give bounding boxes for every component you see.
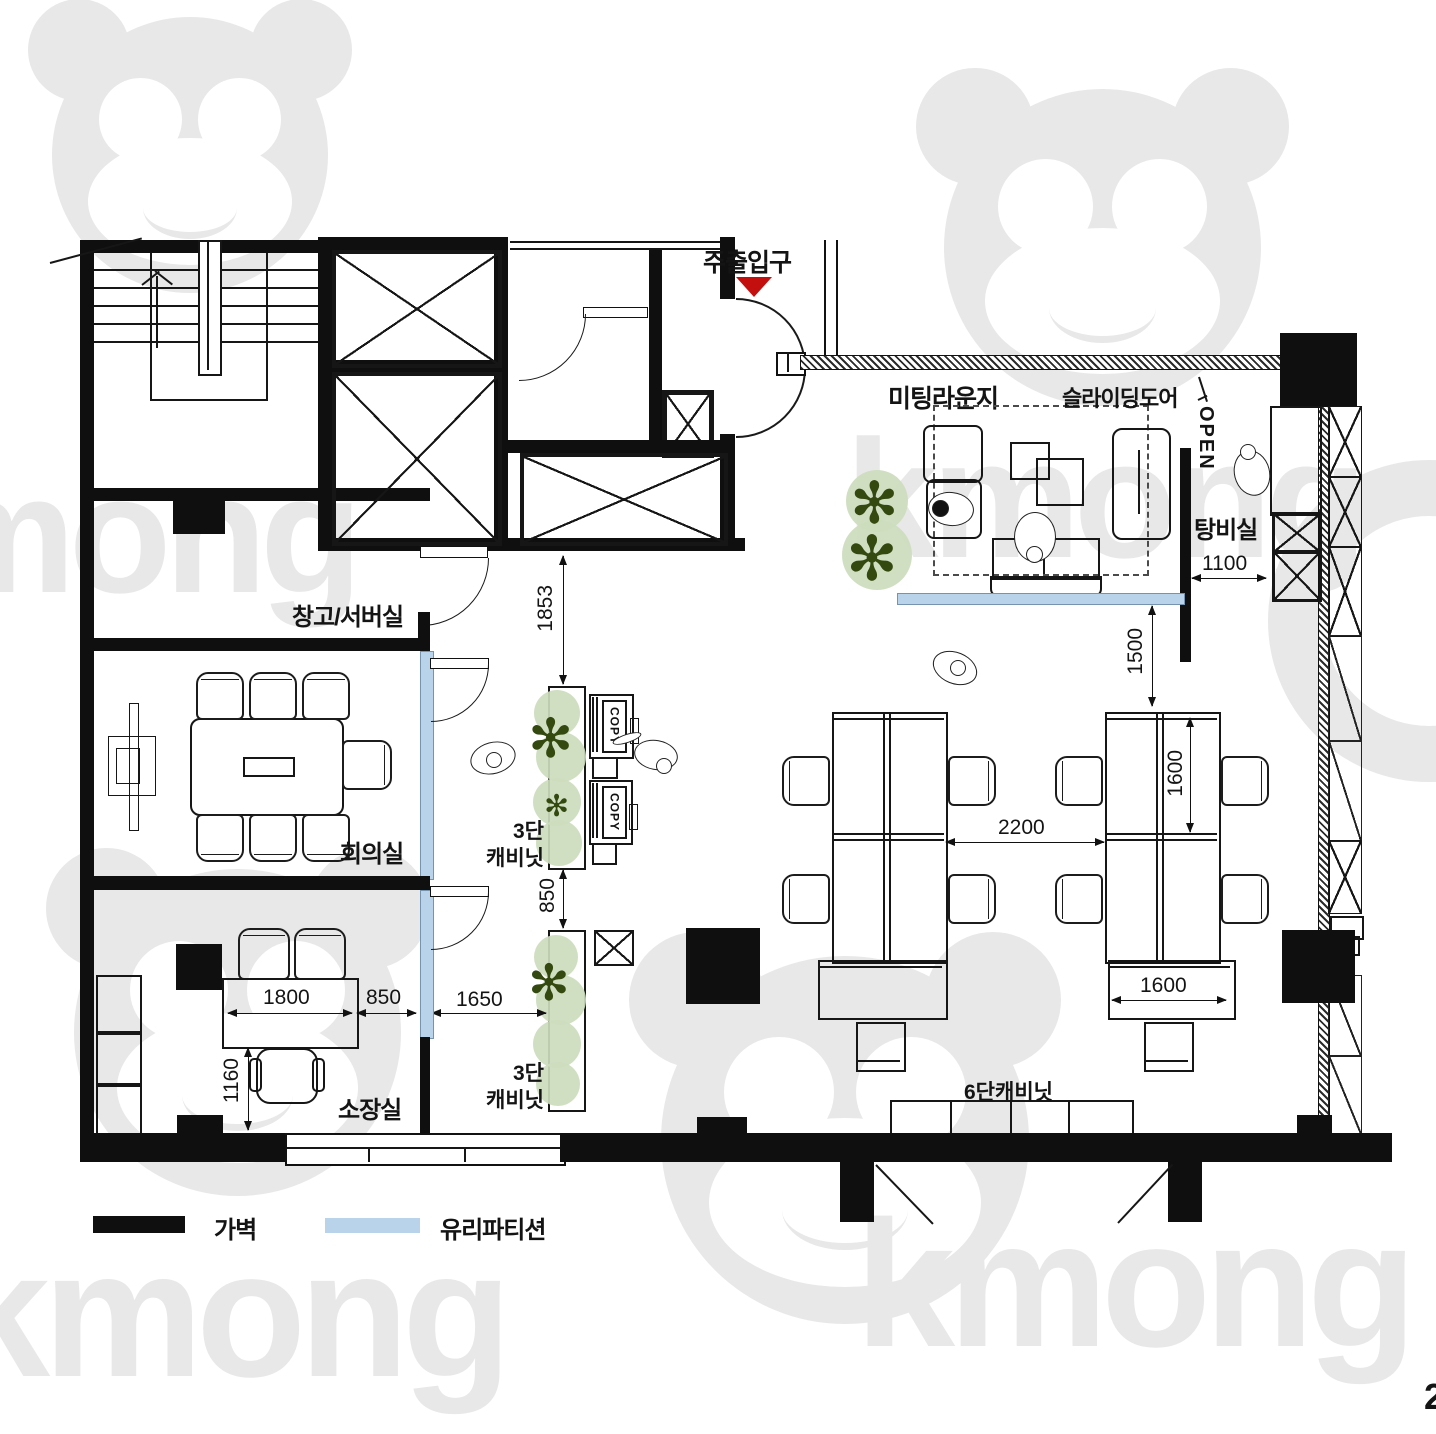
stair-arrow-stem	[156, 276, 158, 348]
office-chair	[782, 874, 830, 924]
cabinet-6tier-divider	[1068, 1100, 1070, 1133]
wall-director-lower	[420, 1037, 430, 1133]
legend-glass-swatch	[325, 1218, 420, 1233]
wall-bottom-stub-right	[1297, 1115, 1332, 1133]
door-jamb-line	[787, 352, 789, 372]
sliding-door-open-label: OPEN	[1194, 406, 1217, 471]
desk-cabinet	[818, 960, 948, 1020]
facade-panel-diag	[1328, 740, 1362, 842]
meeting-room-label: 회의실	[340, 834, 403, 869]
person-head	[950, 660, 966, 676]
copier-label: COPY	[608, 793, 622, 831]
plant-icon: ✻	[846, 528, 898, 590]
cabinet-line	[820, 966, 942, 968]
executive-chair-arm	[312, 1058, 325, 1092]
facade-panel-x	[1328, 546, 1362, 637]
dim-1500-label: 1500	[1124, 628, 1148, 675]
guest-chair	[238, 928, 290, 980]
storage-door-leaf	[420, 546, 488, 558]
dim-1160-label: 1160	[220, 1058, 244, 1103]
cabinet3-label-line1: 3단	[466, 1060, 544, 1087]
dim-1650-label: 1650	[456, 988, 503, 1012]
kmong-text-watermark: kmong	[0, 1225, 505, 1405]
elevator-shaft	[332, 250, 502, 368]
pantry-appliance	[1272, 550, 1322, 602]
cabinet3-label-line1: 3단	[468, 818, 544, 845]
cabinet-6tier-label: 6단캐비닛	[964, 1076, 1053, 1106]
executive-chair	[256, 1048, 318, 1104]
wall-bottom-corner	[1332, 1133, 1392, 1162]
copier-tray	[592, 757, 618, 779]
wall-top-hatched	[800, 355, 1288, 370]
cabinet3-label-line2: 캐비닛	[466, 1087, 544, 1114]
office-chair	[948, 874, 996, 924]
wall-meeting-top	[80, 638, 430, 651]
window-line	[287, 1147, 560, 1149]
meeting-chair	[249, 814, 297, 862]
desk-line	[832, 839, 944, 841]
shaft-c-wall-top	[508, 440, 733, 453]
meeting-chair	[342, 740, 392, 790]
legend-glass-label: 유리파티션	[440, 1210, 545, 1245]
lounge-coffee-table	[1036, 458, 1084, 506]
desk-divider	[883, 712, 885, 960]
side-table	[856, 1022, 906, 1072]
lobby-inner-wall	[649, 250, 662, 448]
office-chair	[1221, 756, 1269, 806]
stair-rail-line	[207, 242, 209, 370]
desk-line	[832, 833, 944, 835]
legend-wall-swatch	[93, 1216, 185, 1233]
cabinet3-label: 3단 캐비닛	[468, 818, 544, 872]
dim-1600h-label: 1600	[1140, 974, 1187, 998]
side-table-line	[858, 1060, 900, 1062]
pantry-counter	[1270, 406, 1322, 516]
extinguisher-symbol	[594, 930, 634, 966]
dim-1600v-label: 1600	[1164, 750, 1188, 797]
meeting-table-tray	[243, 757, 295, 777]
vestibule-door-leaf	[583, 307, 648, 318]
floorplan-canvas: kmong kmong kmong kmong 주출입구	[0, 0, 1436, 1434]
storage-server-label: 창고/서버실	[292, 597, 403, 632]
office-chair	[1221, 874, 1269, 924]
side-table-line	[1146, 1060, 1188, 1062]
dim-1600v	[1190, 718, 1191, 832]
facade-panel-diag	[1328, 635, 1362, 742]
desk-divider	[1156, 712, 1158, 960]
copier-label-box: COPY	[602, 786, 627, 839]
desk-divider	[889, 712, 891, 960]
dim-850-label: 850	[536, 878, 560, 913]
office-chair	[1055, 756, 1103, 806]
plant-icon: ✻	[528, 712, 573, 766]
dim-1800-label: 1800	[263, 986, 310, 1010]
office-chair	[782, 756, 830, 806]
dim-1100-label: 1100	[1202, 552, 1247, 576]
window-band	[285, 1133, 566, 1166]
office-chair	[948, 756, 996, 806]
glass-partition-lounge	[897, 593, 1185, 605]
tv-bracket-inner	[116, 748, 140, 784]
wall-bottom-left	[80, 1133, 290, 1162]
wall-left-outer	[80, 240, 94, 1162]
copier-panel	[592, 783, 600, 838]
bookshelf	[96, 1083, 142, 1137]
meeting-chair	[196, 814, 244, 862]
meeting-chair	[196, 672, 244, 720]
lounge-armchair-line	[1138, 450, 1140, 514]
wall-column-right	[1282, 930, 1355, 1003]
desk-line	[1105, 839, 1217, 841]
legend-wall-label: 가벽	[214, 1210, 256, 1245]
dim-1853-label: 1853	[534, 585, 558, 632]
sliding-door-label: 슬라이딩도어	[1062, 381, 1177, 413]
wall-stub	[173, 501, 225, 534]
window-mullion	[368, 1147, 370, 1162]
pantry-label: 탕비실	[1194, 510, 1257, 545]
dim-1100	[1192, 578, 1266, 579]
facade-panel-x	[1328, 476, 1362, 548]
plant-icon: ✻	[544, 792, 569, 822]
wall-lounge-right	[1180, 448, 1191, 662]
pillar	[840, 1162, 874, 1222]
dim-1853	[563, 556, 564, 684]
elevator-shaft-wide	[520, 453, 728, 546]
pillar	[1168, 1162, 1202, 1222]
page-number: 2	[1424, 1376, 1436, 1418]
wall-core-top	[318, 237, 508, 250]
lounge-armchair-long	[1112, 428, 1171, 540]
pantry-sink	[1272, 512, 1322, 554]
facade-panel-x	[1328, 406, 1362, 478]
person-head	[1240, 444, 1256, 460]
window-mullion	[464, 1147, 466, 1162]
entrance-label: 주출입구	[703, 243, 791, 279]
planter-box	[176, 944, 222, 990]
person-head	[486, 752, 502, 768]
desk-line	[832, 718, 944, 720]
dim-1160	[248, 1048, 249, 1130]
desk-line	[1105, 833, 1217, 835]
copier-label-box: COPY	[602, 700, 627, 753]
copier-tray	[592, 843, 617, 865]
guest-chair	[294, 928, 346, 980]
desk-line	[1105, 718, 1217, 720]
cabinet-line	[1110, 966, 1230, 968]
stair-rail	[198, 240, 222, 376]
director-office-label: 소장실	[338, 1090, 401, 1125]
facade-panel-x	[1328, 840, 1362, 914]
wall-meeting-bottom	[80, 876, 430, 890]
cabinet-6tier-divider	[950, 1100, 952, 1133]
wall-stub-director	[177, 1115, 223, 1133]
executive-chair-arm	[249, 1058, 262, 1092]
person-head	[1026, 546, 1043, 563]
glass-sidelite	[824, 240, 838, 357]
dim-1650	[432, 1013, 546, 1014]
lobby-top-line	[510, 241, 733, 243]
cabinet3-label: 3단 캐비닛	[466, 1060, 544, 1114]
bookshelf	[96, 975, 142, 1035]
facade-panel-diag	[1328, 1055, 1362, 1135]
wall-column-center	[686, 928, 760, 1004]
person-head	[656, 758, 672, 774]
wall-stub-bottom	[697, 1117, 747, 1133]
dim-1600h	[1112, 1000, 1226, 1001]
lounge-armchair	[923, 425, 983, 483]
bookshelf	[96, 1031, 142, 1087]
dim-1800	[228, 1013, 352, 1014]
office-chair	[1055, 874, 1103, 924]
plant-icon: ✻	[528, 958, 570, 1008]
dim-2200	[946, 842, 1104, 843]
entrance-marker-arrow	[736, 277, 772, 297]
meeting-chair	[302, 672, 350, 720]
meeting-chair	[249, 672, 297, 720]
wall-stair-right	[318, 240, 332, 551]
side-table	[1144, 1022, 1194, 1072]
copier-tab	[629, 804, 638, 830]
dim-2200-label: 2200	[998, 816, 1045, 840]
kmong-text-watermark: kmong	[855, 1195, 1410, 1375]
dim-850b-label: 850	[366, 986, 401, 1010]
lobby-top-line	[510, 248, 733, 250]
kmong-text-watermark: kmong	[0, 450, 356, 618]
elevator-shaft	[332, 372, 502, 546]
dim-1500	[1152, 606, 1153, 706]
copier-panel	[592, 697, 600, 752]
person-head	[932, 500, 949, 517]
dim-850	[563, 870, 564, 928]
wall-bottom-main	[560, 1133, 1332, 1162]
wall-block-topright	[1280, 333, 1357, 406]
cabinet3-label-line2: 캐비닛	[468, 845, 544, 872]
dim-850b	[357, 1013, 416, 1014]
